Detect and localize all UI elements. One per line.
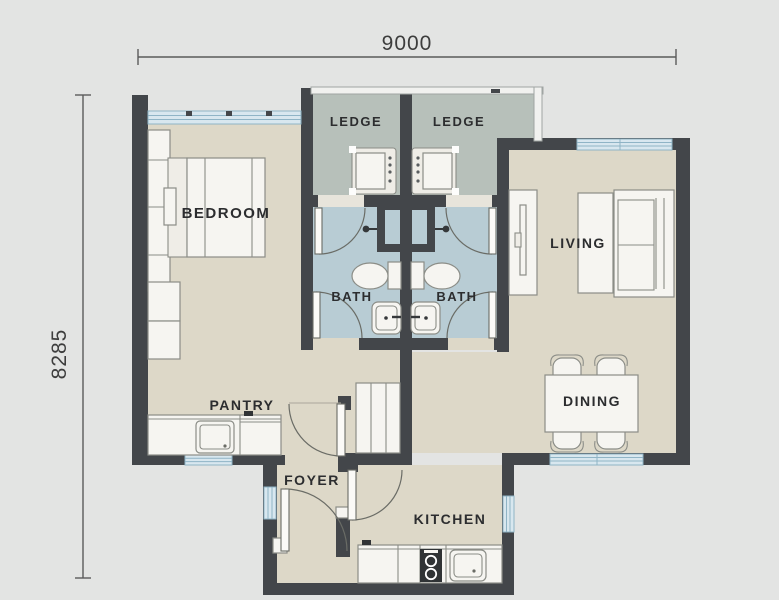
wall-right	[676, 138, 690, 465]
railing-post	[491, 89, 500, 93]
floor-plan-canvas: 9000 8285 LEDGE LEDGE BEDROOM LIVING BAT…	[0, 0, 779, 600]
wall-bath-living	[497, 138, 509, 352]
railing-right	[534, 87, 542, 141]
wall-bedroom-bath	[301, 88, 313, 350]
wall-foyer-left	[263, 455, 277, 595]
pantry-furniture	[148, 411, 281, 455]
pantry-window	[185, 455, 232, 465]
label-pantry: PANTRY	[210, 397, 275, 413]
floor-plan: 9000 8285 LEDGE LEDGE BEDROOM LIVING BAT…	[0, 0, 779, 600]
dining-window	[550, 454, 643, 465]
sink-icon	[196, 421, 234, 453]
hall-connector-floor	[497, 352, 509, 453]
dimension-height-label: 8285	[48, 329, 71, 380]
label-ledge-left: LEDGE	[330, 114, 382, 129]
label-bath-right: BATH	[436, 289, 477, 304]
kitchen-sink-icon	[450, 550, 486, 581]
label-kitchen: KITCHEN	[414, 511, 487, 527]
dimension-left: 8285	[48, 95, 91, 578]
basin-icon	[372, 302, 401, 334]
dimension-top: 9000	[138, 32, 676, 65]
opening-bath-right-ledge	[446, 195, 492, 207]
opening-bath-left-hall	[313, 338, 359, 350]
label-ledge-right: LEDGE	[433, 114, 485, 129]
label-living: LIVING	[550, 235, 606, 251]
kitchen-furniture	[358, 540, 502, 583]
opening-bath-right-hall	[448, 338, 494, 350]
stove-icon	[420, 549, 442, 582]
label-bedroom: BEDROOM	[182, 205, 271, 222]
label-bath-left: BATH	[331, 289, 372, 304]
opening-bath-left-ledge	[318, 195, 364, 207]
label-dining: DINING	[563, 393, 621, 409]
toilet-icon	[352, 263, 388, 289]
basin-icon	[411, 302, 440, 334]
toilet-cistern	[388, 262, 401, 289]
kitchen-window	[503, 496, 514, 532]
sofa	[614, 190, 674, 297]
dimension-width-label: 9000	[382, 32, 433, 55]
dresser-upper	[148, 282, 180, 321]
foyer-window	[264, 487, 276, 519]
hall-floor	[412, 352, 497, 453]
bedroom-window	[148, 111, 301, 124]
toilet-cistern	[411, 262, 424, 289]
wall-bottom	[263, 583, 514, 595]
counter-tap-icon	[362, 540, 371, 545]
toilet-icon	[424, 263, 460, 289]
dresser-lower	[148, 321, 180, 359]
wall-stub-foyer-passage	[336, 517, 350, 557]
label-foyer: FOYER	[284, 472, 340, 488]
living-window	[577, 139, 672, 150]
washing-machine-icon	[412, 146, 459, 195]
railing-top	[311, 87, 543, 94]
tv-mount	[515, 233, 521, 247]
hall-cabinet	[356, 383, 400, 453]
wall-central	[400, 88, 412, 465]
washing-machine-icon	[349, 146, 396, 195]
wall-left	[132, 95, 148, 465]
bedside-table	[164, 188, 176, 225]
